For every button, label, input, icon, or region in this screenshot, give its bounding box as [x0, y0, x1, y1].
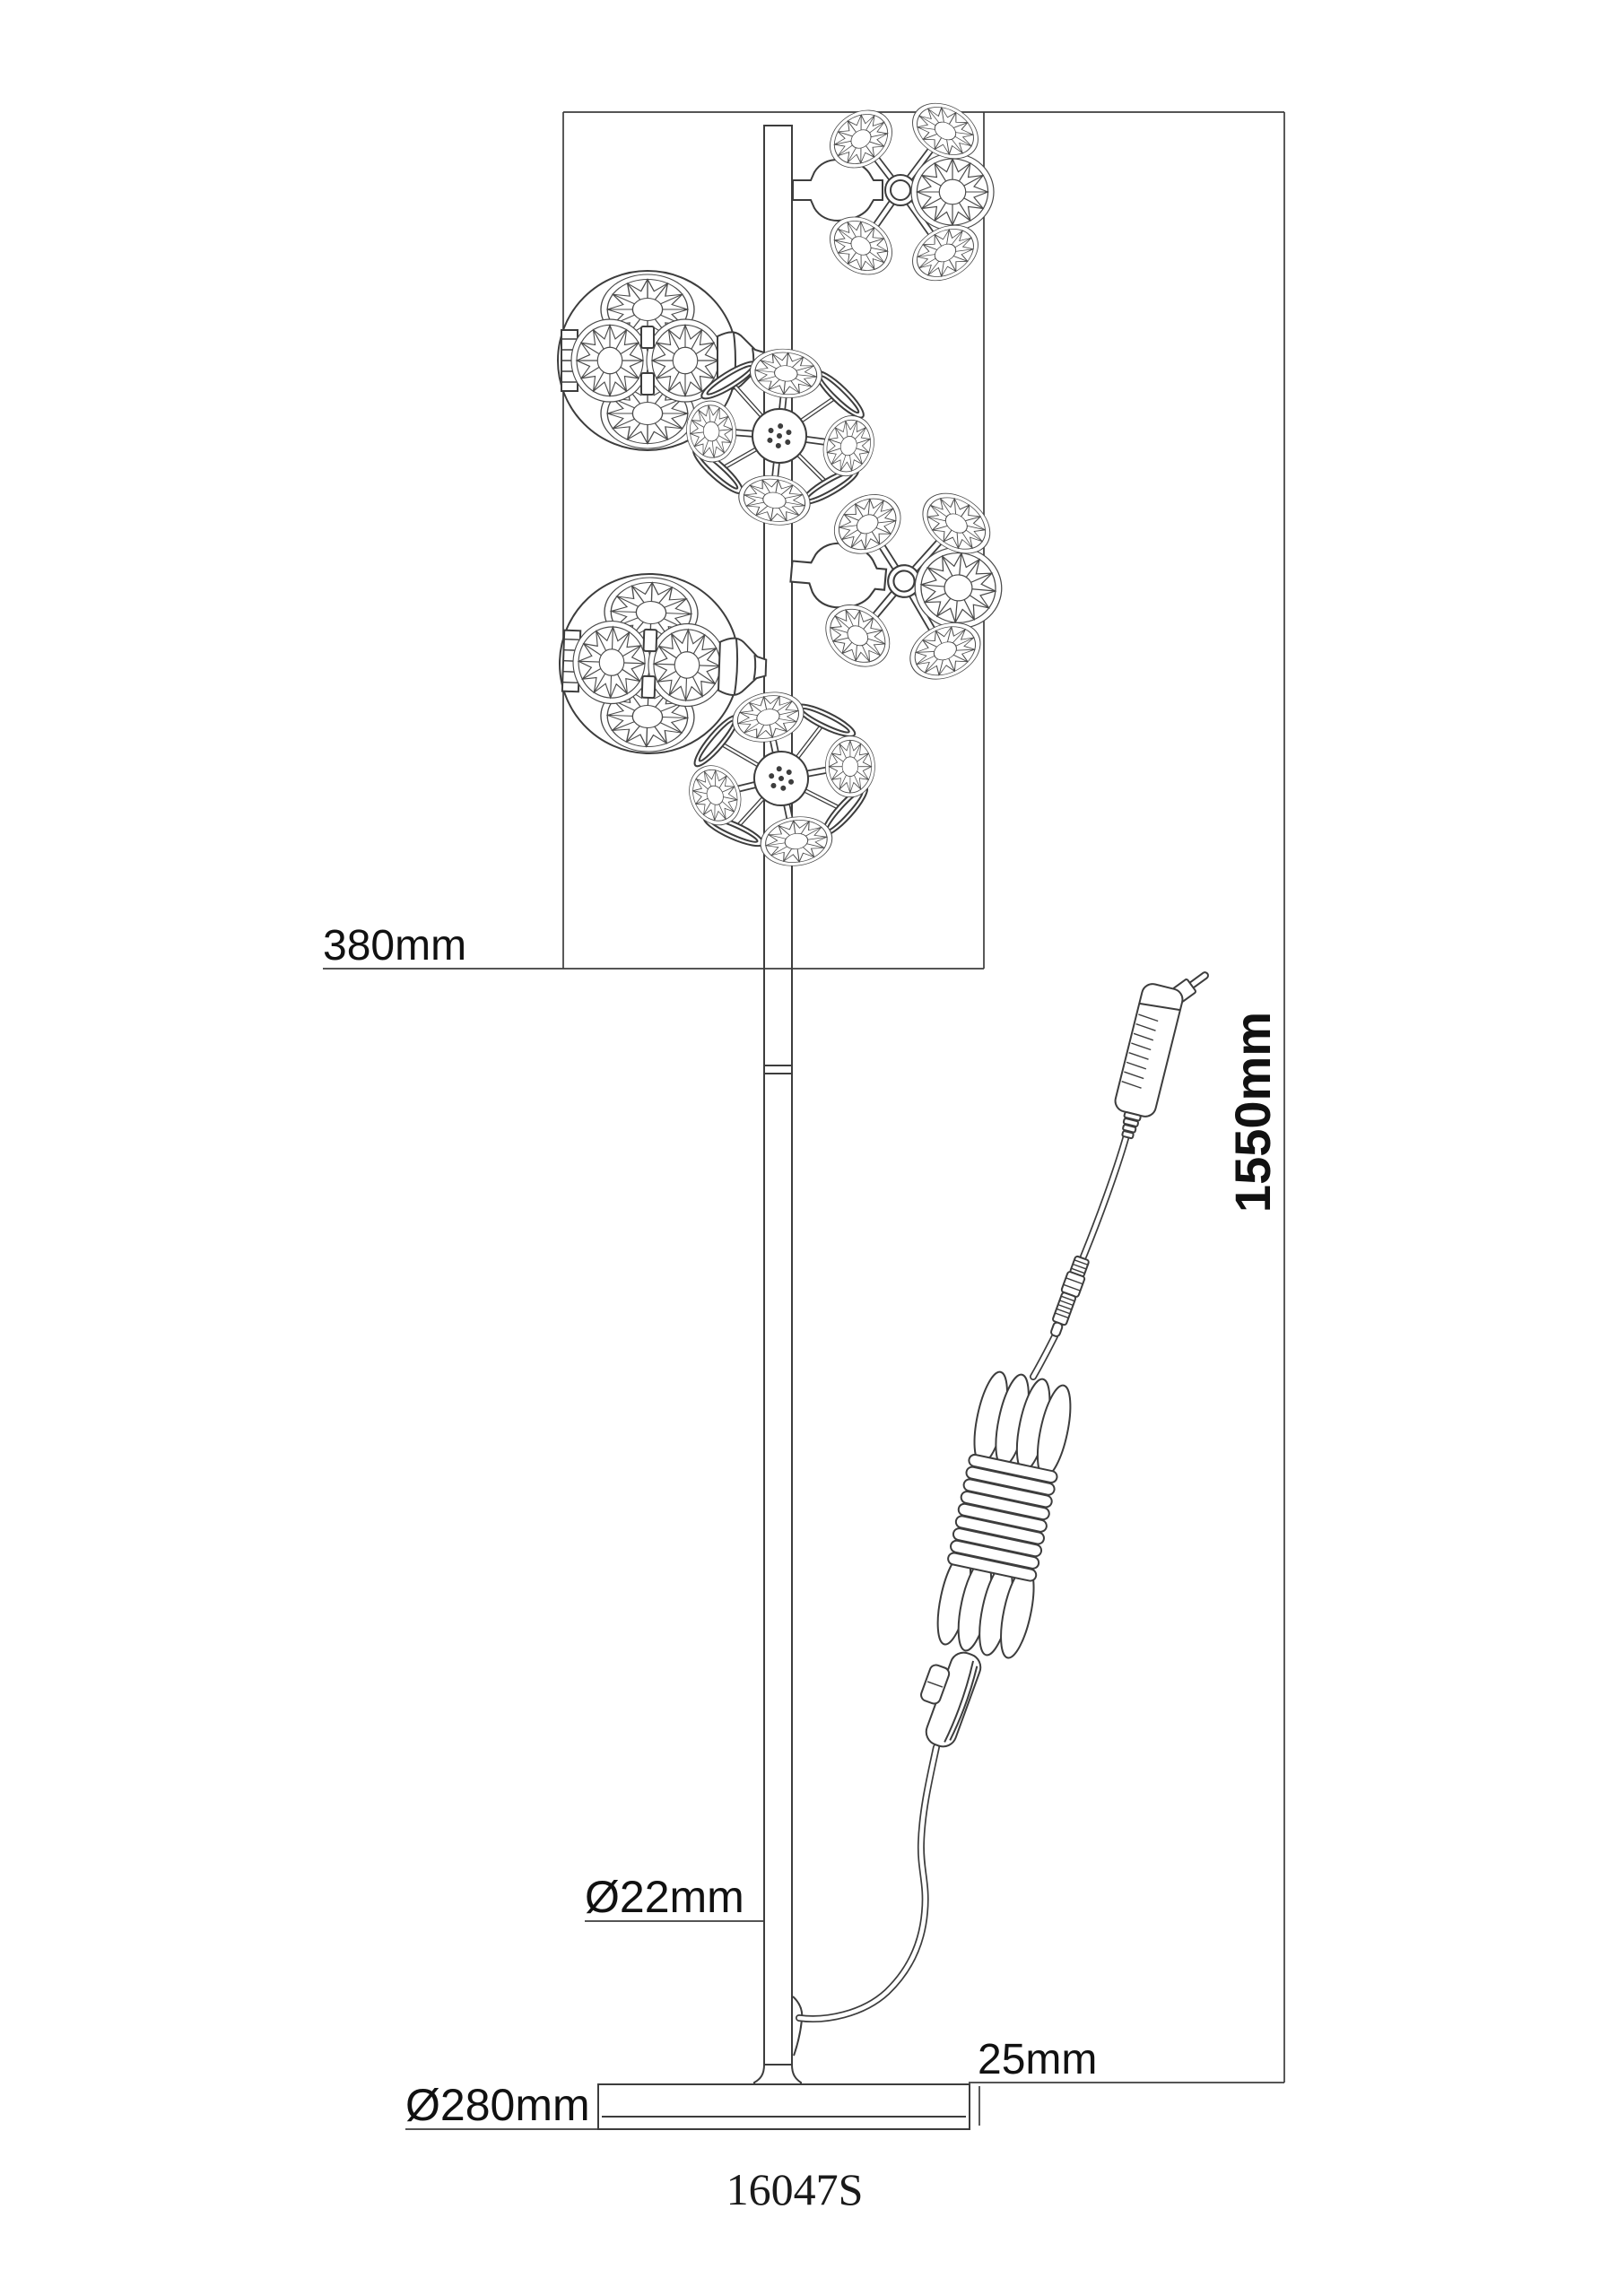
label-model-number: 16047S	[726, 2164, 864, 2214]
label-total-height: 1550mm	[1224, 1012, 1281, 1213]
label-base-diameter: Ø280mm	[405, 2080, 590, 2130]
shade-dandelion-right	[782, 469, 1011, 696]
pole-foot-flare	[754, 2065, 801, 2084]
rocker-switch	[907, 1643, 985, 1751]
label-shade-width: 380mm	[323, 922, 466, 970]
label-base-height: 25mm	[978, 2036, 1097, 2083]
label-pole-diameter: Ø22mm	[585, 1872, 744, 1922]
coiled-cord-bundle	[929, 1368, 1079, 1663]
cord-entry-boot	[793, 1996, 802, 2056]
base-plate	[598, 2084, 970, 2129]
shade-dandelion-top	[793, 92, 994, 292]
floor-lamp-dimension-drawing: 380mm 1550mm Ø22mm 25mm Ø280mm 16047S	[0, 0, 1609, 2296]
power-plug	[1107, 954, 1214, 1148]
plug-strain-relief	[1119, 1112, 1141, 1140]
inline-connector	[1046, 1255, 1091, 1338]
technical-drawing-page: 380mm 1550mm Ø22mm 25mm Ø280mm 16047S	[0, 0, 1609, 2296]
cord-wrap	[947, 1454, 1058, 1582]
